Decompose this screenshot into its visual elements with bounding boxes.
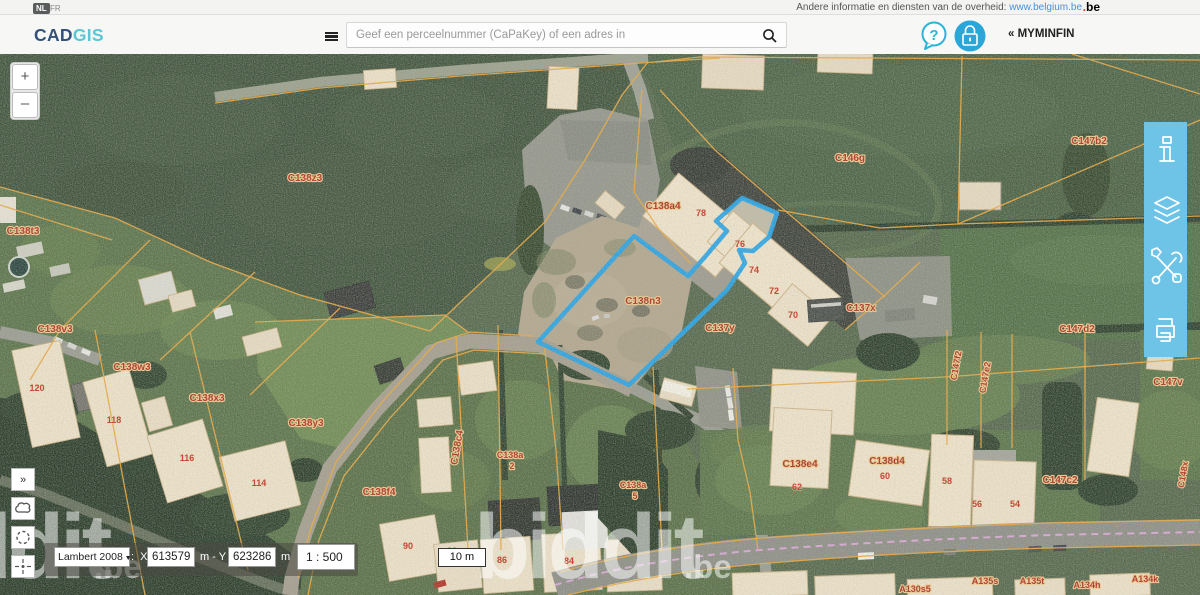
svg-text:biddit: biddit — [474, 496, 704, 595]
svg-text:.be: .be — [684, 548, 732, 585]
svg-text:?: ? — [929, 27, 938, 44]
